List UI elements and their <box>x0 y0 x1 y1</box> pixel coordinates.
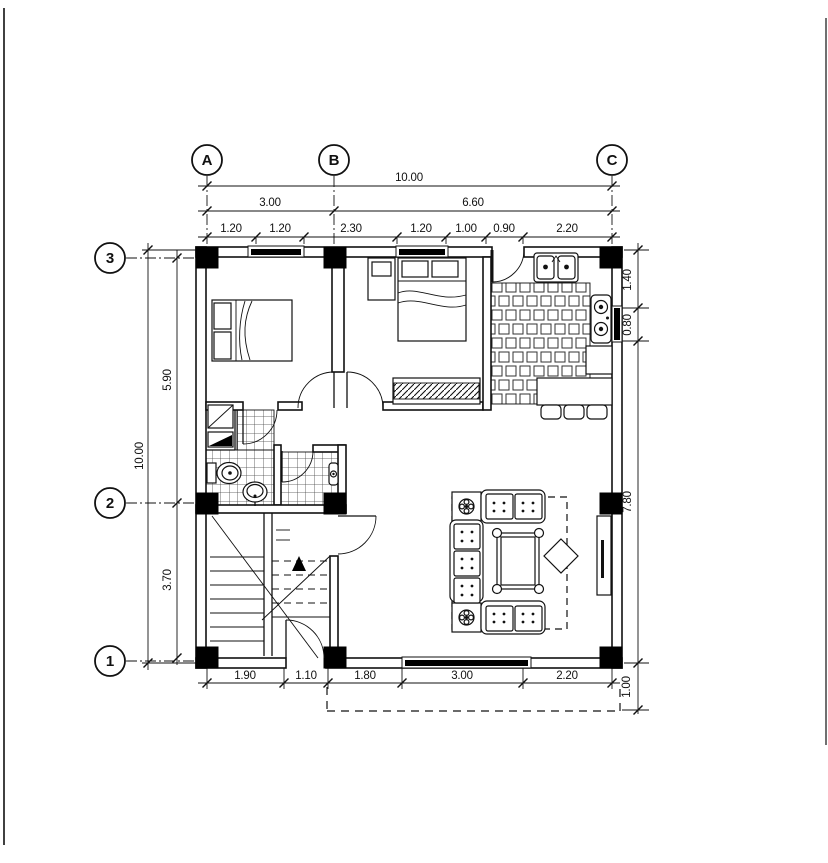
grid-label-1: 1 <box>106 653 114 670</box>
dim-left-overall: 10.00 <box>134 442 146 470</box>
dim-left-seg-0: 5.90 <box>162 369 174 391</box>
dim-bottom-seg-3: 3.00 <box>451 670 473 682</box>
door-stair-hall <box>338 516 376 554</box>
grid-label-3: 3 <box>106 250 114 267</box>
grid-label-B: B <box>329 152 340 169</box>
bar-stool <box>541 405 561 419</box>
column-c2 <box>600 493 622 514</box>
pillow <box>214 303 231 329</box>
dim-top-seg-4: 1.00 <box>455 223 477 235</box>
dim-top-span-ab: 3.00 <box>259 197 281 209</box>
porch-outline <box>327 687 620 711</box>
pillow <box>402 261 428 277</box>
grid-label-C: C <box>607 152 618 169</box>
floor-plan-drawing: A B C 3 2 1 10.00 3.00 6.60 1.20 1.20 2.… <box>0 0 828 863</box>
dim-top-seg-5: 0.90 <box>493 223 515 235</box>
bar-stool <box>564 405 584 419</box>
toilet-tank <box>207 463 216 483</box>
window-bedroom2 <box>399 249 445 255</box>
staircase <box>210 513 330 658</box>
dim-right-seg-2: 7.80 <box>622 491 634 513</box>
grid-label-2: 2 <box>106 495 114 512</box>
coffee-table <box>493 529 544 594</box>
floor-plan-page: A B C 3 2 1 10.00 3.00 6.60 1.20 1.20 2.… <box>0 0 828 863</box>
door-entrance <box>286 620 324 658</box>
living-room <box>450 490 611 634</box>
column-a2 <box>196 493 218 514</box>
kitchen-bar <box>537 378 612 405</box>
dim-right-seg-0: 1.40 <box>622 269 634 291</box>
pillow <box>214 332 231 359</box>
dimension-chain-bottom: 1.90 1.10 1.80 3.00 2.20 <box>198 668 620 711</box>
dim-top-seg-2: 2.30 <box>340 223 362 235</box>
dim-bottom-seg-1: 1.10 <box>295 670 317 682</box>
wall-bedroom-divider <box>332 257 344 372</box>
bedroom2-bed <box>398 258 466 341</box>
dim-bottom-seg-2: 1.80 <box>354 670 376 682</box>
bedroom2-rug <box>393 378 480 404</box>
column-a3 <box>196 247 218 268</box>
tv-icon <box>601 540 604 578</box>
stair-up-arrow <box>292 556 306 571</box>
closet-shelves <box>208 405 233 447</box>
window-living <box>405 660 528 666</box>
stair-break-line <box>212 516 318 658</box>
dim-top-seg-6: 2.20 <box>556 223 578 235</box>
column-b2 <box>324 493 346 514</box>
dimension-chain-left: 10.00 5.90 3.70 <box>134 243 196 670</box>
corner-table <box>452 492 481 521</box>
column-c3 <box>600 247 622 268</box>
dim-bottom-seg-0: 1.90 <box>234 670 256 682</box>
bathroom2-fixtures <box>329 463 338 485</box>
dim-top-seg-0: 1.20 <box>220 223 242 235</box>
bedroom1-bed <box>212 300 292 361</box>
door-bedroom1 <box>298 372 334 408</box>
wall-left <box>196 247 206 668</box>
grid-label-A: A <box>202 152 213 169</box>
window-bedroom1 <box>251 249 301 255</box>
dim-top-span-bc: 6.60 <box>462 197 484 209</box>
column-b3 <box>324 247 346 268</box>
dim-top-seg-1: 1.20 <box>269 223 291 235</box>
sofa-two-seat-top <box>481 490 545 523</box>
wall-kitchen <box>483 257 491 410</box>
dim-right-seg-1: 0.80 <box>622 314 634 336</box>
sofa-three-seat <box>450 520 483 603</box>
dim-top-seg-3: 1.20 <box>410 223 432 235</box>
door-kitchen <box>492 250 524 282</box>
diamond-side-table <box>544 539 578 573</box>
window-kitchen <box>614 308 620 340</box>
bedroom2 <box>368 258 480 404</box>
dim-top-overall: 10.00 <box>395 172 423 184</box>
column-b1 <box>324 647 346 668</box>
pillow <box>432 261 458 277</box>
door-bedroom2 <box>347 372 383 408</box>
tv-cabinet <box>597 516 611 595</box>
bar-stool <box>587 405 607 419</box>
dimension-chain-top: 10.00 3.00 6.60 1.20 1.20 2.30 1.20 1.00… <box>198 172 620 244</box>
dim-right-porch: 1.00 <box>621 676 633 698</box>
wall-stair-right <box>330 556 338 658</box>
corner-table <box>452 603 481 632</box>
dim-left-seg-1: 3.70 <box>162 569 174 591</box>
column-c1 <box>600 647 622 668</box>
wall-bath-divider <box>274 445 281 505</box>
column-a1 <box>196 647 218 668</box>
dim-bottom-seg-4: 2.20 <box>556 670 578 682</box>
kitchen-counter-unit <box>586 346 612 374</box>
sofa-two-seat-bottom <box>481 601 545 634</box>
